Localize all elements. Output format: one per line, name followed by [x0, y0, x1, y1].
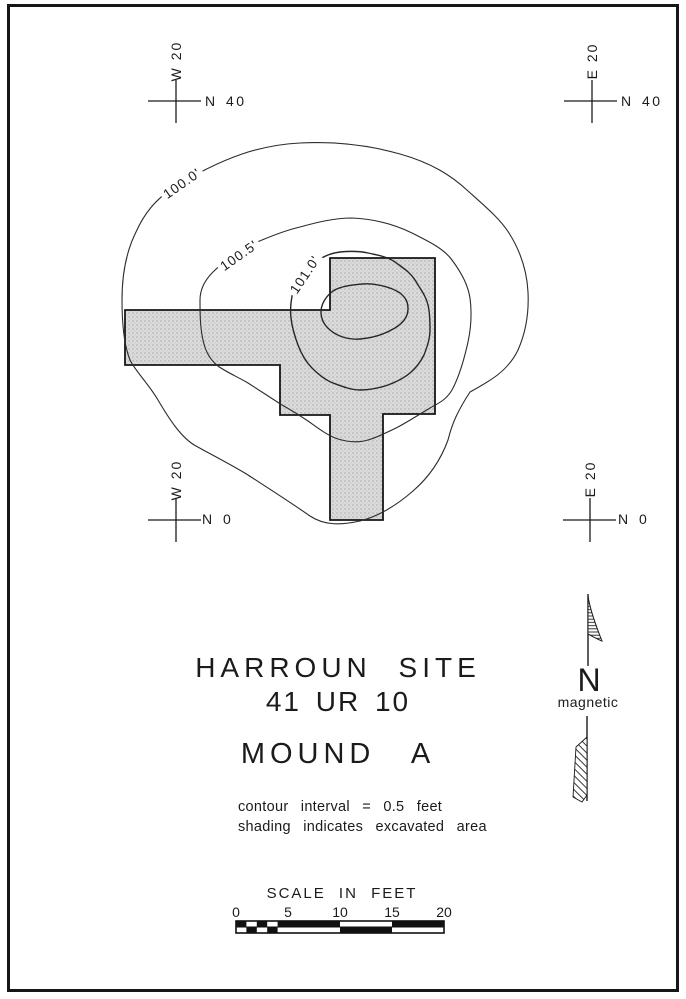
scale-tick-15: 15 — [377, 905, 407, 919]
north-letter: N — [574, 664, 604, 696]
grid-ne-vertical-label: E 20 — [585, 31, 599, 91]
grid-se-vertical-label: E 20 — [583, 449, 597, 509]
scale-tick-0: 0 — [221, 905, 251, 919]
grid-sw-vertical-label: W 20 — [169, 450, 183, 510]
grid-se-horizontal-label: N 0 — [618, 512, 649, 526]
note-contour-interval: contour interval = 0.5 feet — [238, 800, 442, 815]
grid-nw-vertical-label: W 20 — [169, 31, 183, 91]
grid-ne-horizontal-label: N 40 — [621, 94, 663, 108]
north-magnetic-label: magnetic — [548, 695, 628, 709]
scale-bar — [236, 921, 444, 933]
scale-tick-5: 5 — [273, 905, 303, 919]
site-name-title: HARROUN SITE — [138, 654, 538, 682]
scale-tick-20: 20 — [429, 905, 459, 919]
grid-nw-horizontal-label: N 40 — [205, 94, 247, 108]
note-shading: shading indicates excavated area — [238, 820, 487, 835]
north-arrow-pennant — [588, 596, 602, 641]
site-number-title: 41 UR 10 — [138, 688, 538, 716]
north-arrow-blade — [573, 737, 587, 802]
grid-sw-horizontal-label: N 0 — [202, 512, 233, 526]
scale-caption: SCALE IN FEET — [238, 886, 446, 901]
scale-tick-10: 10 — [325, 905, 355, 919]
map-sheet: W 20 N 40 E 20 N 40 W 20 N 0 E 20 N 0 10… — [0, 0, 686, 999]
mound-title: MOUND A — [138, 740, 538, 769]
